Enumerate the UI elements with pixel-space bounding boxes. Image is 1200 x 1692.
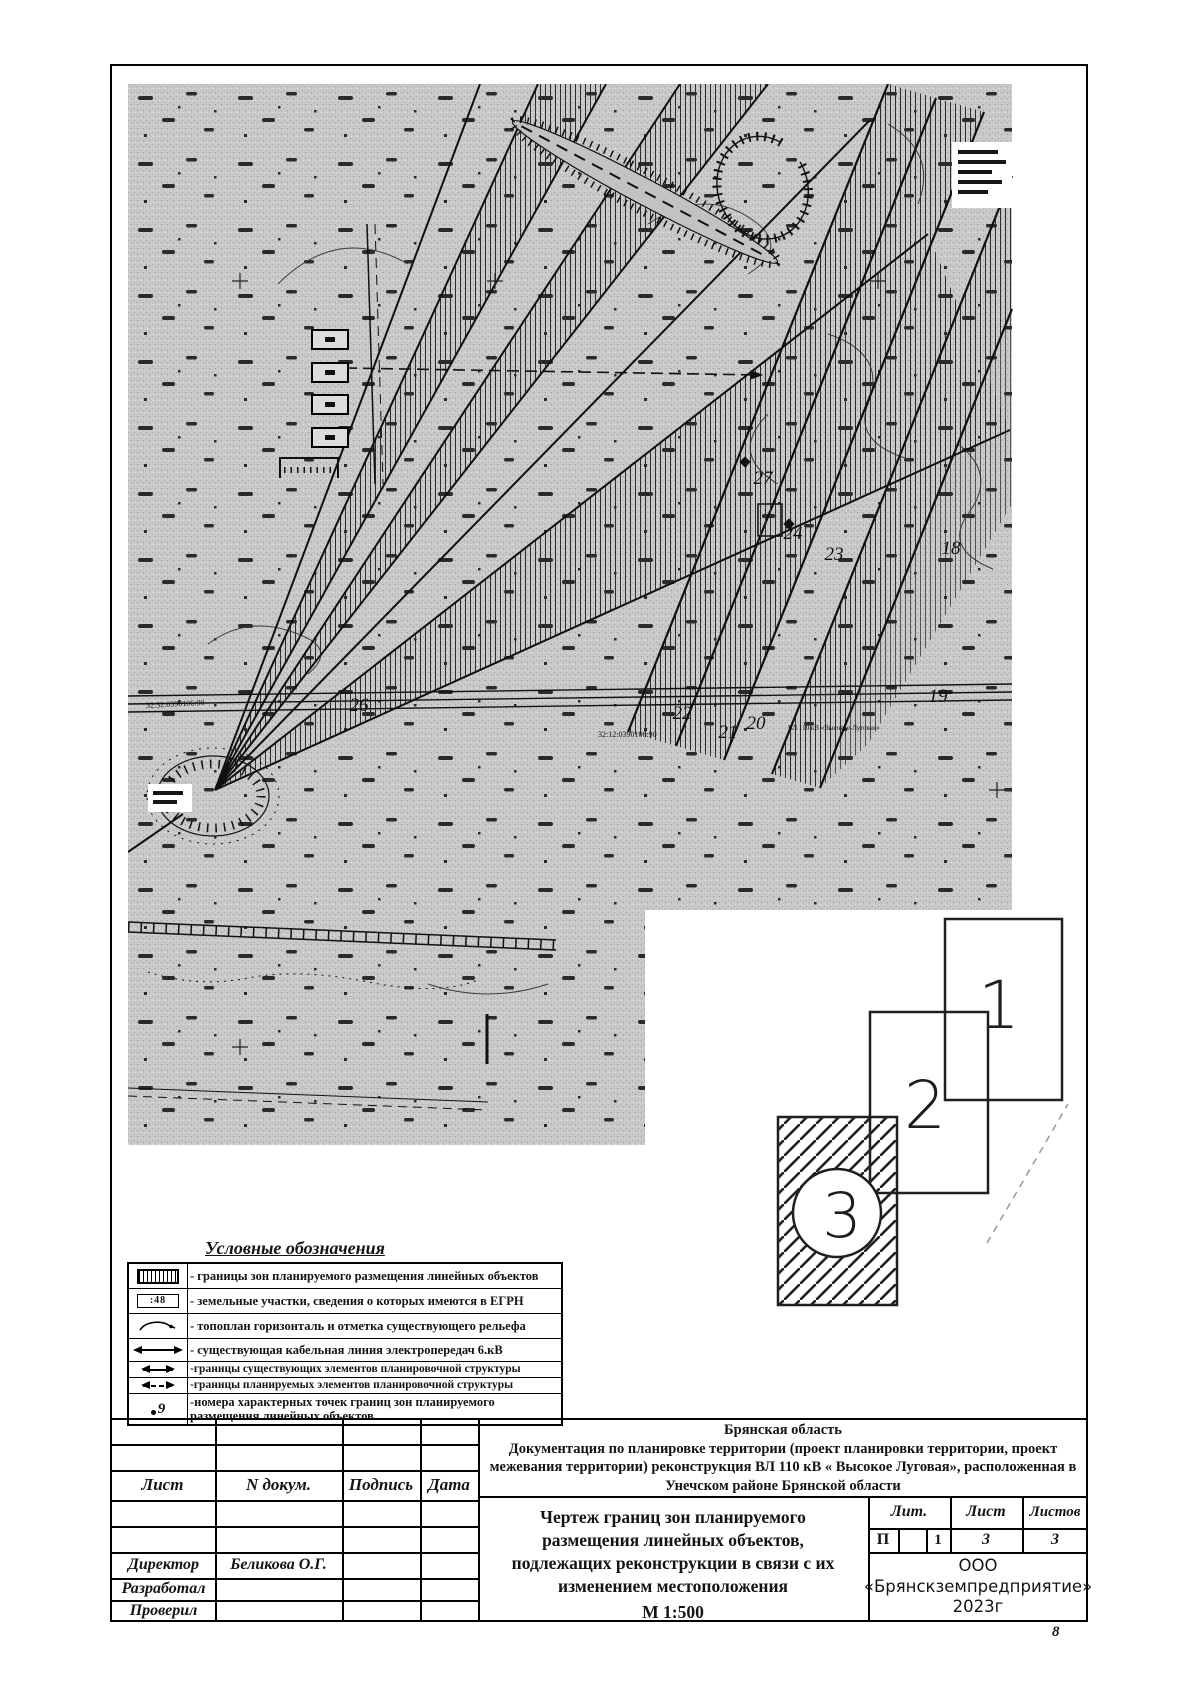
director-name: Беликова О.Г. <box>215 1552 342 1578</box>
project-description: Брянская область Документация по планиро… <box>482 1421 1084 1495</box>
legend-row: - границы зон планируемого размещения ли… <box>129 1264 561 1288</box>
legend-row-label: - топоплан горизонталь и отметка существ… <box>188 1318 529 1334</box>
planned-borders-arrow-symbol <box>143 1385 173 1387</box>
existing-borders-arrow-symbol <box>143 1369 173 1371</box>
legend-title: Условные обозначения <box>205 1238 563 1259</box>
col-header-sheet: Лист <box>110 1470 215 1500</box>
doc-line-3: Унечском районе Брянской области <box>665 1477 901 1496</box>
legend-row: - существующая кабельная линия электропе… <box>129 1338 561 1361</box>
legend-row-label: -границы существующих элементов планиров… <box>188 1362 524 1377</box>
cable-arrow-symbol <box>135 1349 181 1351</box>
lit-value: П <box>868 1528 898 1552</box>
role-director: Директор <box>112 1552 215 1578</box>
legend-row: -границы планируемых элементов планирово… <box>129 1377 561 1393</box>
drawing-scale: М 1:500 <box>642 1601 704 1624</box>
legend-row: :48 - земельные участки, сведения о кото… <box>129 1288 561 1313</box>
route-label: ВЛ 110 кВ «Высокое-Луговая» <box>788 724 880 732</box>
point-dot-icon <box>151 1410 156 1415</box>
inset-label-2: 2 <box>904 1067 946 1144</box>
legend-row-label: -границы планируемых элементов планирово… <box>188 1378 516 1393</box>
legend-row-label: - существующая кабельная линия электропе… <box>188 1342 506 1358</box>
legend-table: - границы зон планируемого размещения ли… <box>127 1262 563 1426</box>
region-name: Брянская область <box>724 1421 842 1440</box>
legend-row-label: - земельные участки, сведения о которых … <box>188 1293 527 1309</box>
point-label-24: 24 <box>784 523 804 544</box>
contour-symbol <box>136 1318 180 1334</box>
lit-sub-value: 1 <box>926 1528 950 1552</box>
point-label-18: 18 <box>942 538 962 559</box>
doc-line-2: межевания территории) реконструкция ВЛ 1… <box>490 1458 1077 1477</box>
legend-row-label: - границы зон планируемого размещения ли… <box>188 1268 542 1284</box>
point-label-22: 22 <box>673 703 693 724</box>
point-label-20: 20 <box>747 713 767 734</box>
sheet-value: 3 <box>950 1528 1022 1552</box>
doc-line-1: Документация по планировке территории (п… <box>509 1440 1057 1459</box>
col-header-doc-no: N докум. <box>215 1470 342 1500</box>
legend-row: -границы существующих элементов планиров… <box>129 1361 561 1377</box>
sheets-value: 3 <box>1022 1528 1088 1552</box>
point-label-26: 26 <box>350 695 370 716</box>
point-label-21: 21 <box>719 722 738 743</box>
point-label-27: 27 <box>754 468 775 489</box>
inset-label-1: 1 <box>978 967 1020 1044</box>
zone-hatch-symbol <box>137 1269 179 1284</box>
detail-insets: 1 2 3 <box>778 919 1068 1305</box>
cadastral-label: 32:12:0390106:90 <box>598 730 657 739</box>
col-header-signature: Подпись <box>342 1470 420 1500</box>
scanned-sheet: { "sheet": { "page_number": "8" }, "map"… <box>0 0 1200 1692</box>
site-plan-map: 27 24 23 18 19 26 22 21 20 32:32:0390106… <box>128 84 1086 1310</box>
page-number: 8 <box>1052 1624 1060 1641</box>
title-block: Лист N докум. Подпись Дата Директор Бели… <box>110 1418 1088 1622</box>
point-label-19: 19 <box>929 686 949 707</box>
point-number-symbol: 9 <box>151 1401 166 1418</box>
sheets-header: Листов <box>1022 1496 1088 1528</box>
role-developed: Разработал <box>112 1578 215 1600</box>
drawing-title: Чертеж границ зон планируемого размещени… <box>482 1506 864 1624</box>
legend: Условные обозначения - границы зон плани… <box>127 1238 563 1426</box>
col-header-date: Дата <box>420 1470 478 1500</box>
role-checked: Проверил <box>112 1600 215 1622</box>
sheet-header: Лист <box>950 1496 1022 1528</box>
legend-row: - топоплан горизонталь и отметка существ… <box>129 1313 561 1338</box>
inset-label-3: 3 <box>822 1179 861 1252</box>
parcel-symbol: :48 <box>137 1294 179 1308</box>
organization: ООО «Брянскземпредприятие» 2023г <box>868 1554 1088 1620</box>
point-label-23: 23 <box>825 544 844 565</box>
lit-header: Лит. <box>868 1496 950 1528</box>
